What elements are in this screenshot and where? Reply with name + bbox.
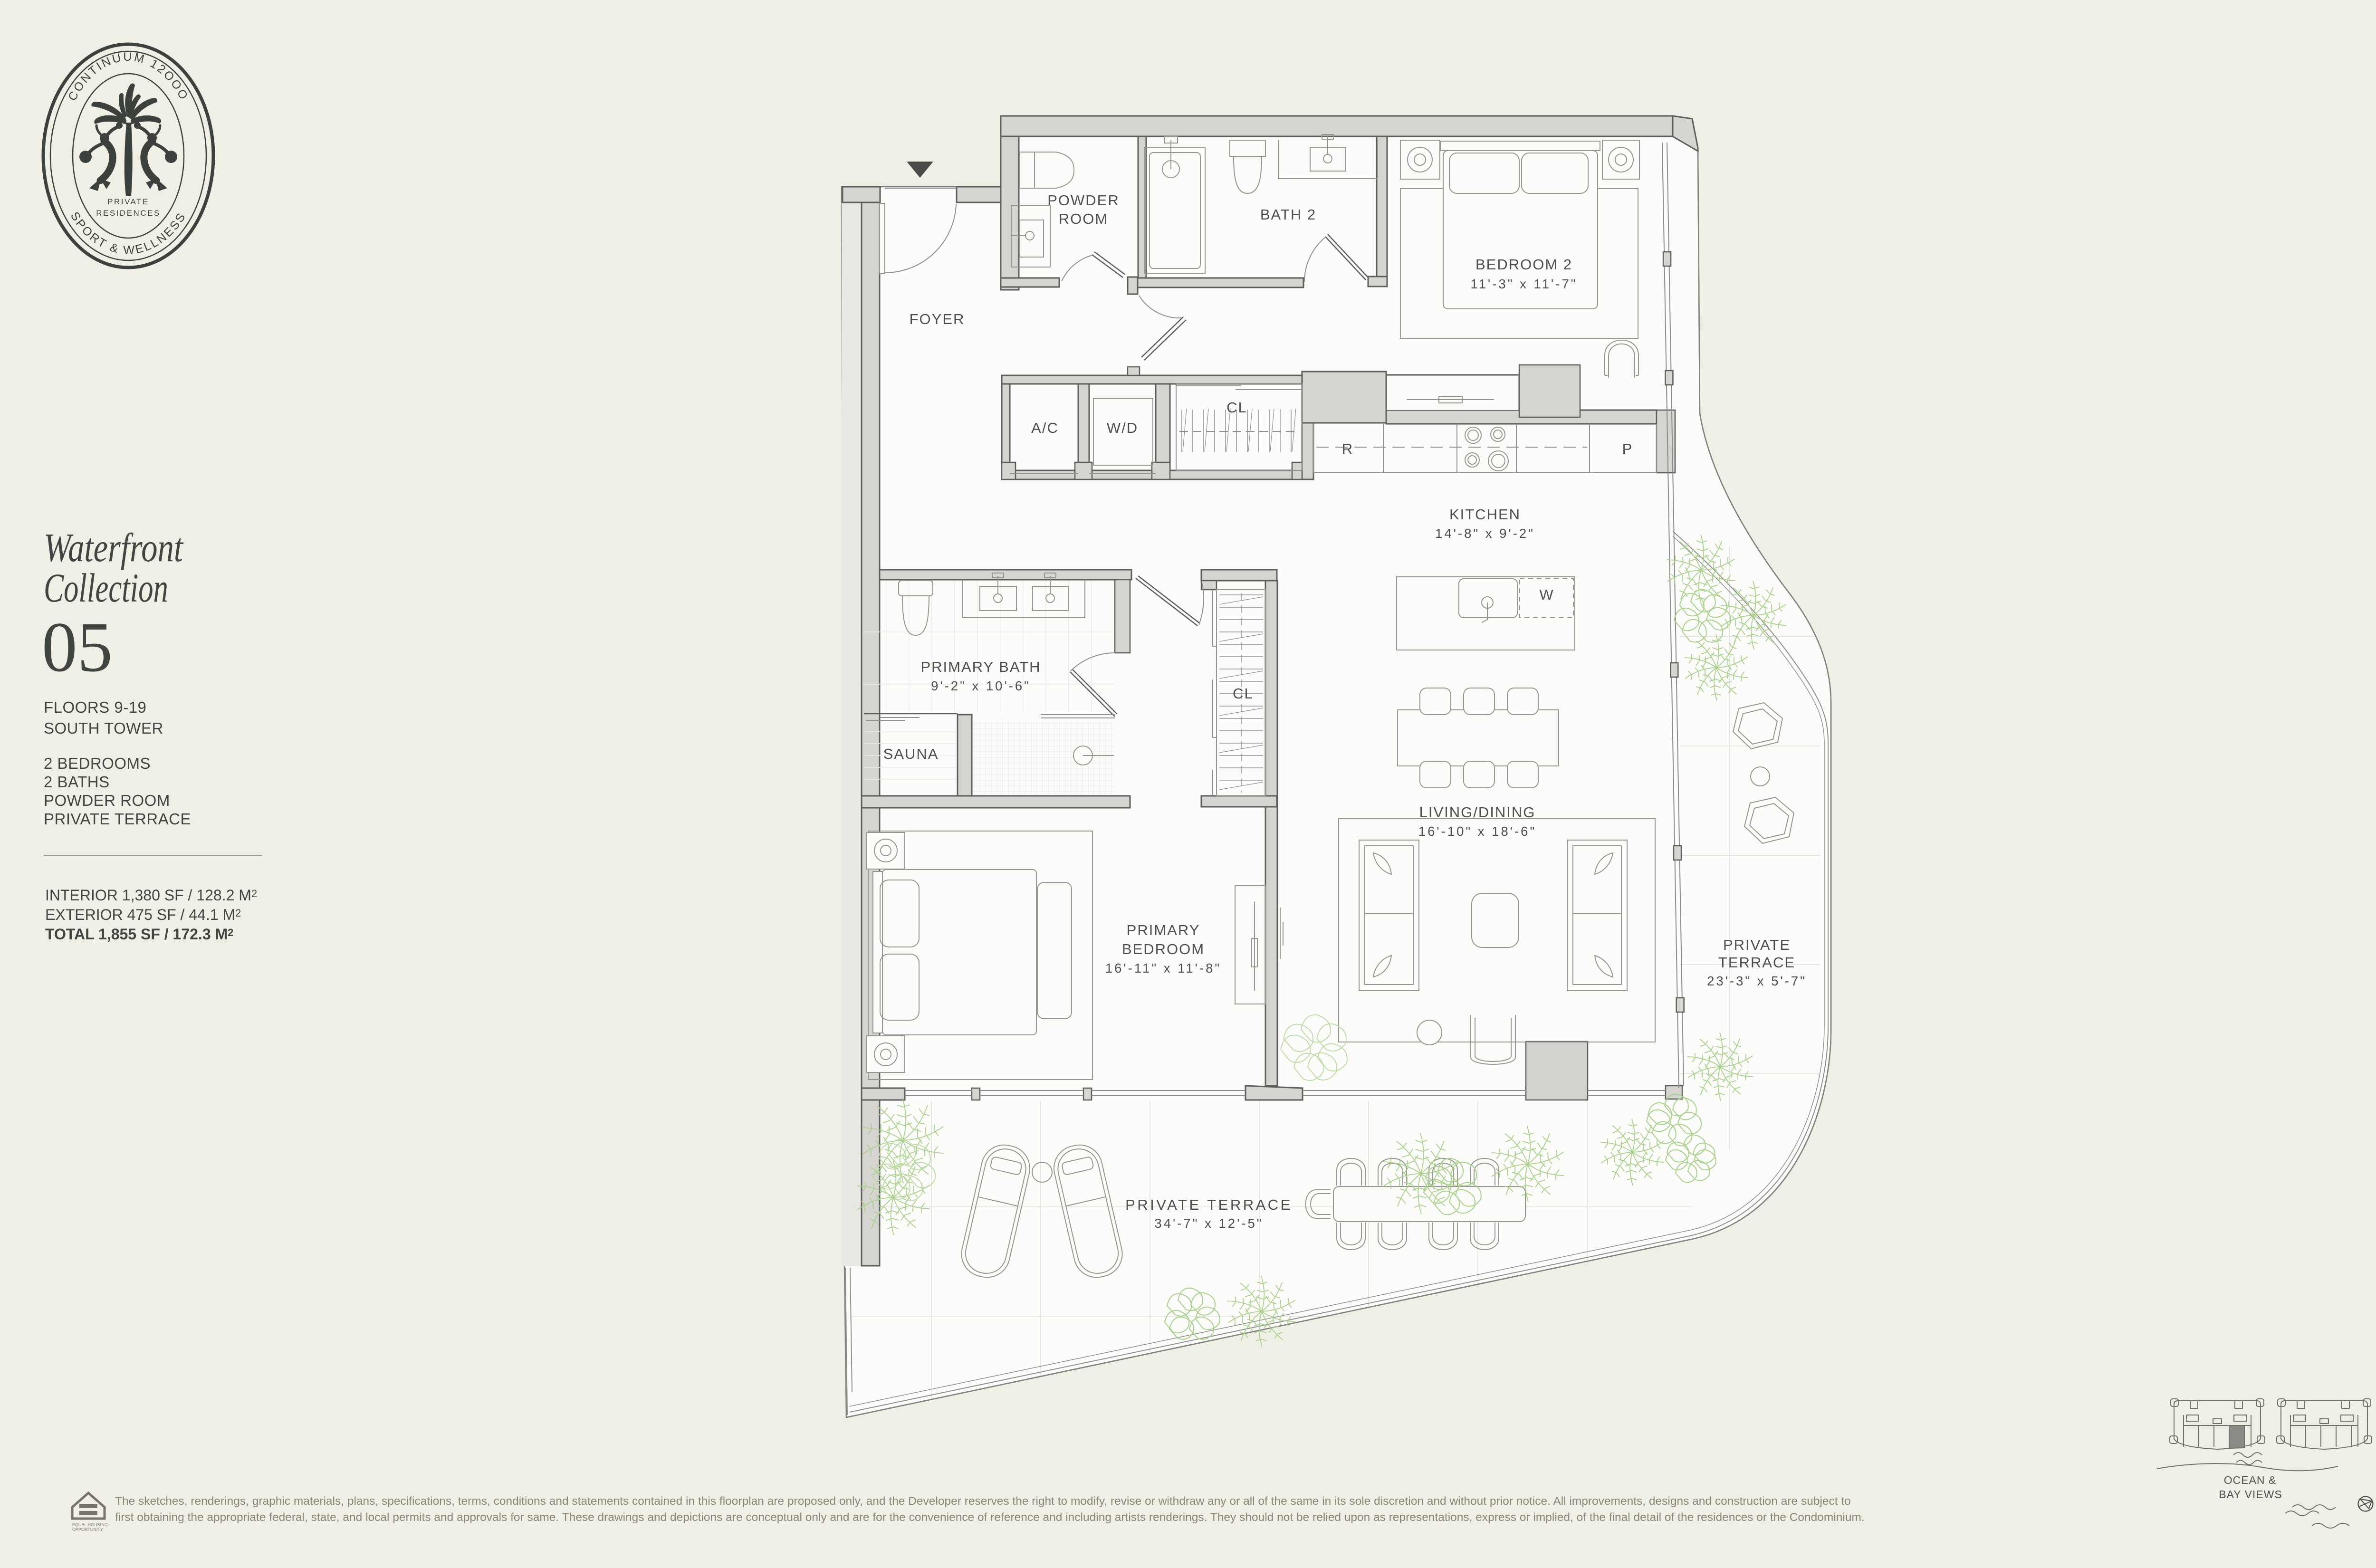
svg-text:PRIVATE: PRIVATE <box>107 197 149 206</box>
svg-text:LIVING/DINING: LIVING/DINING <box>1419 804 1536 821</box>
svg-text:Collection: Collection <box>44 565 168 611</box>
svg-text:BAY VIEWS: BAY VIEWS <box>2219 1488 2282 1501</box>
svg-text:PRIVATE TERRACE: PRIVATE TERRACE <box>44 810 191 828</box>
svg-text:BATH 2: BATH 2 <box>1260 206 1316 223</box>
svg-text:PRIMARY BATH: PRIMARY BATH <box>920 659 1041 675</box>
svg-text:SAUNA: SAUNA <box>883 746 939 762</box>
svg-text:2 BATHS: 2 BATHS <box>44 773 110 791</box>
svg-text:RESIDENCES: RESIDENCES <box>96 209 161 218</box>
svg-text:PRIVATE: PRIVATE <box>1723 937 1791 953</box>
svg-text:SOUTH TOWER: SOUTH TOWER <box>44 719 163 737</box>
svg-text:OCEAN &: OCEAN & <box>2224 1474 2277 1486</box>
svg-text:BEDROOM 2: BEDROOM 2 <box>1475 256 1572 273</box>
svg-text:first obtaining the appropriat: first obtaining the appropriate federal,… <box>115 1511 1865 1524</box>
svg-text:BEDROOM: BEDROOM <box>1122 941 1205 957</box>
svg-text:TERRACE: TERRACE <box>1718 954 1795 971</box>
svg-text:11'-3" x 11'-7": 11'-3" x 11'-7" <box>1470 277 1577 291</box>
svg-text:W/D: W/D <box>1107 420 1138 436</box>
svg-text:Waterfront: Waterfront <box>44 525 184 570</box>
svg-text:FOYER: FOYER <box>910 311 965 327</box>
svg-text:16'-10" x 18'-6": 16'-10" x 18'-6" <box>1418 824 1536 839</box>
svg-text:CL: CL <box>1226 399 1247 416</box>
svg-text:W: W <box>1539 586 1554 603</box>
svg-text:POWDER: POWDER <box>1047 192 1120 209</box>
svg-text:P: P <box>1622 440 1633 457</box>
svg-text:14'-8" x 9'-2": 14'-8" x 9'-2" <box>1435 526 1535 541</box>
svg-text:R: R <box>1342 440 1353 457</box>
svg-text:2 BEDROOMS: 2 BEDROOMS <box>44 755 151 772</box>
svg-text:A/C: A/C <box>1031 420 1059 436</box>
svg-text:23'-3" x 5'-7": 23'-3" x 5'-7" <box>1707 974 1807 988</box>
svg-text:KITCHEN: KITCHEN <box>1449 506 1521 523</box>
svg-text:05: 05 <box>42 608 113 687</box>
svg-text:FLOORS 9-19: FLOORS 9-19 <box>44 698 146 716</box>
svg-text:16'-11" x 11'-8": 16'-11" x 11'-8" <box>1105 961 1221 975</box>
svg-text:PRIVATE TERRACE: PRIVATE TERRACE <box>1125 1196 1293 1213</box>
svg-text:CL: CL <box>1233 685 1254 702</box>
svg-text:PRIMARY: PRIMARY <box>1127 922 1200 938</box>
svg-text:9'-2" x 10'-6": 9'-2" x 10'-6" <box>931 679 1031 693</box>
svg-text:EQUAL HOUSING: EQUAL HOUSING <box>72 1522 108 1527</box>
svg-text:TOTAL 1,855 SF / 172.3 M2: TOTAL 1,855 SF / 172.3 M2 <box>45 926 233 943</box>
svg-text:EXTERIOR 475 SF / 44.1 M2: EXTERIOR 475 SF / 44.1 M2 <box>45 906 241 923</box>
svg-text:OPPORTUNITY: OPPORTUNITY <box>72 1527 103 1532</box>
svg-text:INTERIOR 1,380 SF / 128.2 M2: INTERIOR 1,380 SF / 128.2 M2 <box>45 887 257 904</box>
svg-text:The sketches, renderings, grap: The sketches, renderings, graphic materi… <box>115 1495 1851 1508</box>
svg-text:34'-7" x 12'-5": 34'-7" x 12'-5" <box>1154 1216 1263 1231</box>
svg-text:ROOM: ROOM <box>1059 210 1108 227</box>
svg-text:POWDER ROOM: POWDER ROOM <box>44 792 170 809</box>
